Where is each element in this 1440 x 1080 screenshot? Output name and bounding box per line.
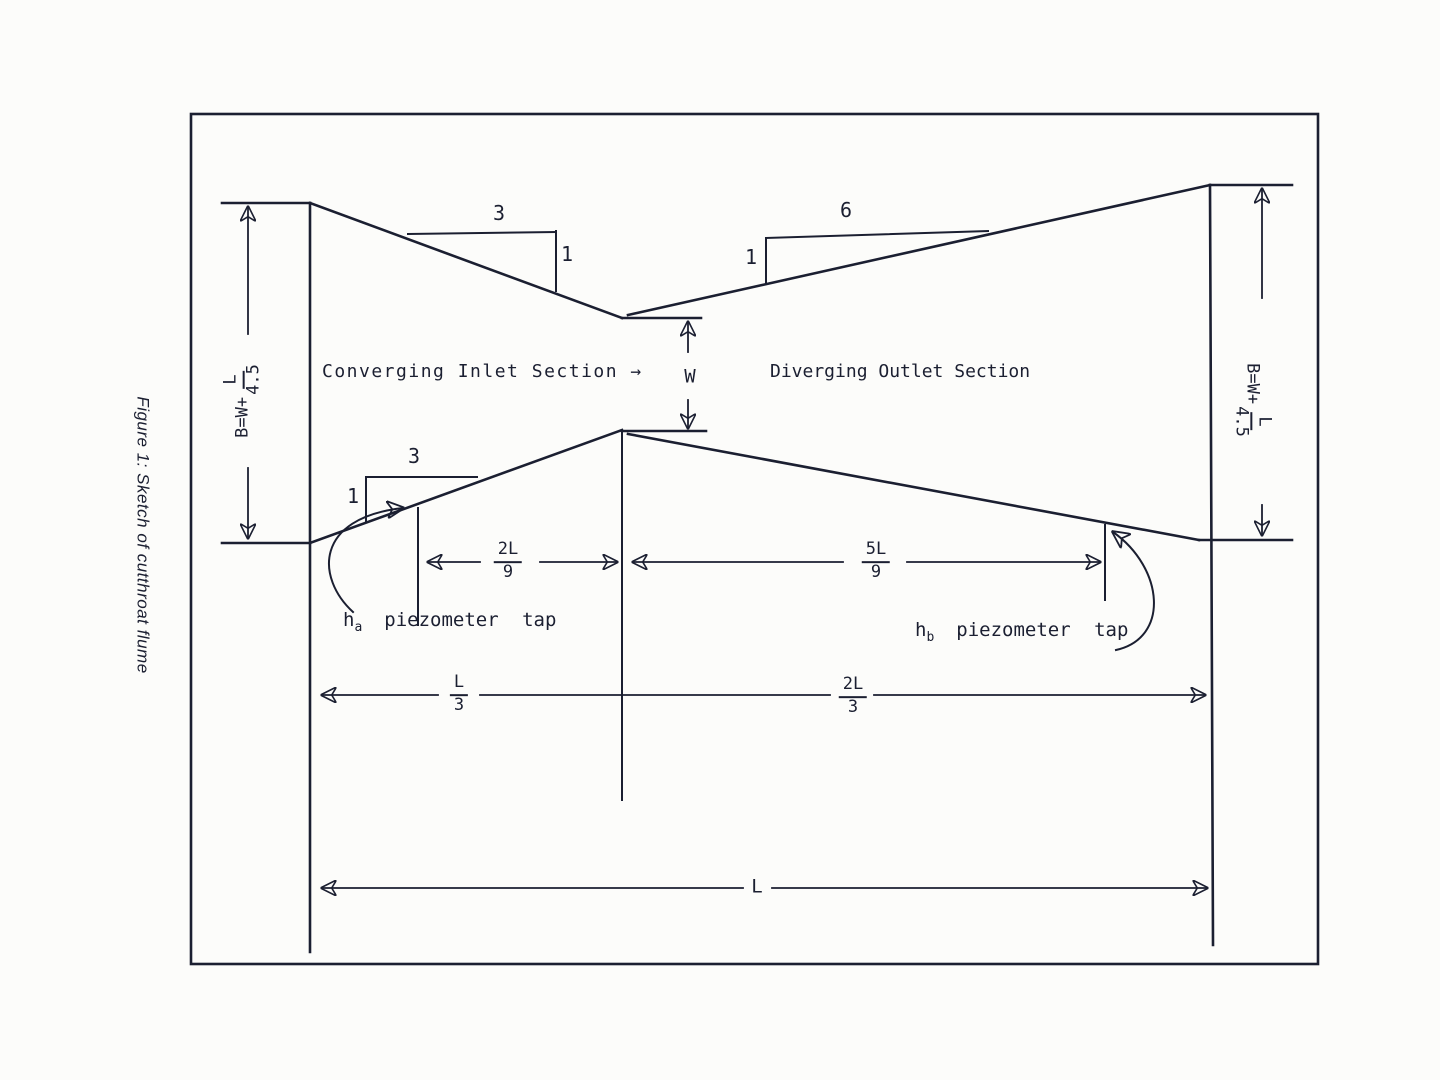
hb-symbol: hb (915, 619, 934, 641)
document-page: Figure 1: Sketch of cutthroat flume Conv… (0, 0, 1440, 1080)
ha-symbol: ha (343, 609, 362, 631)
throat-width-label: W (684, 367, 695, 388)
width-fraction: L 4.5 (1232, 406, 1273, 437)
piezometer-hb-label: hbpiezometer tap (915, 620, 1128, 645)
flume-diagram (0, 0, 1440, 1080)
slope-rise-outlet-top: 1 (745, 246, 757, 268)
width-expression: B=W+ (234, 397, 253, 438)
slope-rise-inlet-bottom: 1 (347, 485, 359, 507)
width-expression: B=W+ (1243, 363, 1262, 404)
diverging-section-label: Diverging Outlet Section (770, 362, 1030, 382)
figure-caption: Figure 1: Sketch of cutthroat flume (133, 396, 152, 673)
converging-section-label: Converging Inlet Section → (322, 362, 643, 382)
slope-run-outlet-top: 6 (840, 199, 852, 221)
piezometer-ha-label: hapiezometer tap (343, 610, 556, 635)
width-dimension-right: B=W+ L 4.5 (1232, 363, 1273, 437)
total-length-label: L (751, 877, 762, 898)
inlet-length-dimension: L3 (450, 673, 468, 715)
outlet-tap-dimension: 5L9 (862, 540, 890, 582)
figure-border (191, 114, 1318, 964)
slope-run-inlet-top: 3 (493, 202, 505, 224)
outlet-length-dimension: 2L3 (839, 675, 867, 717)
inlet-tap-dimension: 2L9 (494, 540, 522, 582)
dimension-lines (248, 189, 1262, 888)
slope-run-inlet-bottom: 3 (408, 445, 420, 467)
width-dimension-left: B=W+ L 4.5 (223, 364, 264, 438)
slope-rise-inlet-top: 1 (561, 243, 573, 265)
flume-outline (222, 185, 1292, 952)
width-fraction: L 4.5 (223, 364, 264, 395)
